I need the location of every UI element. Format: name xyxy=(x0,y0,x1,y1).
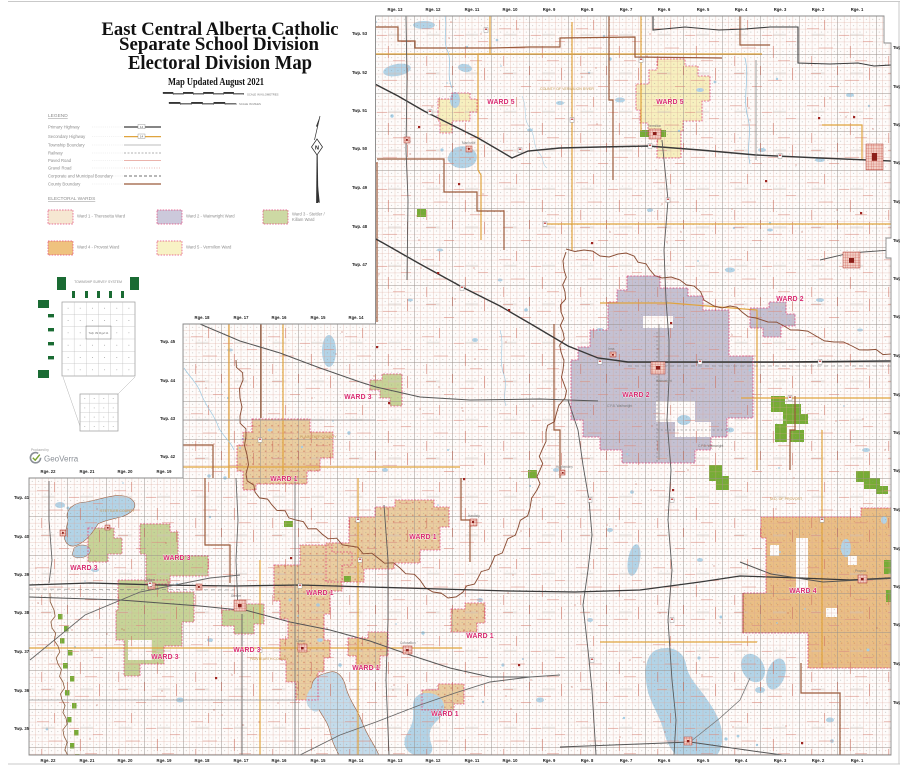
svg-text:WARD 1: WARD 1 xyxy=(409,532,437,541)
svg-text:Rge. 9: Rge. 9 xyxy=(543,7,556,12)
svg-text:TOWNSHIP SURVEY SYSTEM: TOWNSHIP SURVEY SYSTEM xyxy=(74,280,122,284)
svg-text:C.F.B. Wainwright: C.F.B. Wainwright xyxy=(698,444,723,448)
svg-text:Rge. 11: Rge. 11 xyxy=(465,7,480,12)
svg-text:Map Updated August 2021: Map Updated August 2021 xyxy=(168,77,264,88)
svg-text:Paved Road: Paved Road xyxy=(48,158,72,163)
svg-text:Twp. 42: Twp. 42 xyxy=(893,430,900,435)
svg-text:Twp. 51: Twp. 51 xyxy=(352,108,368,113)
svg-text:Twp. 42: Twp. 42 xyxy=(160,454,176,459)
svg-text:WARD 1: WARD 1 xyxy=(466,631,494,640)
svg-text:Twp 39 Rge 11: Twp 39 Rge 11 xyxy=(89,331,109,335)
svg-text:Rge. 8: Rge. 8 xyxy=(581,758,594,763)
svg-text:Rge. 3: Rge. 3 xyxy=(774,7,787,12)
svg-text:SCALE IN MILES: SCALE IN MILES xyxy=(239,102,261,106)
svg-text:Twp. 38: Twp. 38 xyxy=(893,584,900,589)
svg-text:Stettler: Stettler xyxy=(231,594,242,598)
svg-text:Twp. 35: Twp. 35 xyxy=(893,700,900,705)
svg-text:Killam Ward: Killam Ward xyxy=(292,217,315,222)
svg-text:WARD 5: WARD 5 xyxy=(656,97,684,106)
svg-text:Castor: Castor xyxy=(296,639,306,643)
svg-text:Rge. 16: Rge. 16 xyxy=(272,758,288,763)
svg-text:County Boundary: County Boundary xyxy=(48,181,81,186)
svg-text:WARD 3: WARD 3 xyxy=(163,553,191,562)
svg-text:Twp. 38: Twp. 38 xyxy=(14,610,30,615)
svg-text:Twp. 47: Twp. 47 xyxy=(352,262,368,267)
svg-text:COUNTY OF VERMILION RIVER: COUNTY OF VERMILION RIVER xyxy=(540,87,594,91)
svg-text:Rge. 21: Rge. 21 xyxy=(80,758,96,763)
svg-text:Coronation: Coronation xyxy=(400,641,416,645)
svg-text:Rge. 20: Rge. 20 xyxy=(118,469,134,474)
svg-text:Rge. 20: Rge. 20 xyxy=(118,758,134,763)
svg-text:Gravel Road: Gravel Road xyxy=(48,165,72,170)
svg-text:Hughenden: Hughenden xyxy=(556,465,573,469)
svg-text:Rge. 10: Rge. 10 xyxy=(503,7,519,12)
svg-text:Twp. 36: Twp. 36 xyxy=(893,661,900,666)
svg-text:Rge. 3: Rge. 3 xyxy=(774,758,787,763)
svg-text:Rge. 14: Rge. 14 xyxy=(349,758,365,763)
svg-text:Rge. 19: Rge. 19 xyxy=(157,469,173,474)
svg-text:STETTLER COUNTY: STETTLER COUNTY xyxy=(100,509,135,513)
svg-text:Twp. 46: Twp. 46 xyxy=(893,276,900,281)
svg-text:Rge. 22: Rge. 22 xyxy=(41,758,57,763)
svg-text:WARD 3: WARD 3 xyxy=(344,392,372,401)
svg-text:WARD 1: WARD 1 xyxy=(431,709,459,718)
svg-text:Twp. 37: Twp. 37 xyxy=(14,649,30,654)
svg-text:Irma: Irma xyxy=(608,347,615,351)
svg-text:Rge. 15: Rge. 15 xyxy=(311,315,327,320)
svg-text:Twp. 49: Twp. 49 xyxy=(352,185,368,190)
svg-text:Secondary Highway: Secondary Highway xyxy=(48,134,86,139)
svg-text:Rge. 2: Rge. 2 xyxy=(812,758,825,763)
svg-text:Rge. 14: Rge. 14 xyxy=(349,315,365,320)
svg-text:Twp. 44: Twp. 44 xyxy=(893,353,900,358)
svg-text:Twp. 37: Twp. 37 xyxy=(893,622,900,627)
svg-text:M.D. OF PROVOST: M.D. OF PROVOST xyxy=(770,497,803,501)
svg-text:Twp. 50: Twp. 50 xyxy=(352,146,368,151)
svg-text:Rge. 18: Rge. 18 xyxy=(195,758,211,763)
svg-text:Mannville: Mannville xyxy=(462,141,476,145)
svg-text:Twp. 50: Twp. 50 xyxy=(893,122,900,127)
svg-text:WARD 3: WARD 3 xyxy=(70,563,98,572)
svg-text:Ward 5 - Vermilion Ward: Ward 5 - Vermilion Ward xyxy=(186,245,232,250)
svg-text:Twp. 36: Twp. 36 xyxy=(14,688,30,693)
svg-text:Twp. 52: Twp. 52 xyxy=(352,70,368,75)
svg-text:WARD 3: WARD 3 xyxy=(151,652,179,661)
svg-text:GeoVerra: GeoVerra xyxy=(44,455,79,464)
svg-text:Vermilion: Vermilion xyxy=(648,124,661,128)
svg-text:Rge. 12: Rge. 12 xyxy=(426,758,442,763)
svg-text:C.F.B. Wainwright: C.F.B. Wainwright xyxy=(607,404,632,408)
svg-text:Twp. 43: Twp. 43 xyxy=(893,392,900,397)
svg-text:Killam: Killam xyxy=(146,578,155,582)
svg-text:Rge. 10: Rge. 10 xyxy=(503,758,519,763)
svg-text:WARD 2: WARD 2 xyxy=(622,390,650,399)
svg-text:Rge. 13: Rge. 13 xyxy=(388,758,404,763)
svg-text:Twp. 39: Twp. 39 xyxy=(14,572,30,577)
svg-text:SCALE IN KILOMETRES: SCALE IN KILOMETRES xyxy=(247,93,279,97)
svg-text:FLAGSTAFF COUNTY: FLAGSTAFF COUNTY xyxy=(300,435,337,439)
svg-text:LEGEND: LEGEND xyxy=(48,113,68,119)
svg-text:Rge. 18: Rge. 18 xyxy=(195,315,211,320)
svg-text:Twp. 41: Twp. 41 xyxy=(14,495,30,500)
svg-text:Twp. 52: Twp. 52 xyxy=(893,45,900,50)
svg-text:Rge. 5: Rge. 5 xyxy=(697,758,710,763)
svg-text:14: 14 xyxy=(140,134,144,138)
svg-text:Ward 3 - Stettler /: Ward 3 - Stettler / xyxy=(292,212,325,217)
svg-text:WARD 1: WARD 1 xyxy=(352,663,380,672)
svg-text:Twp. 51: Twp. 51 xyxy=(893,84,900,89)
svg-text:Produced by: Produced by xyxy=(31,448,49,452)
svg-text:Twp. 41: Twp. 41 xyxy=(893,468,900,473)
svg-text:Twp. 40: Twp. 40 xyxy=(893,507,900,512)
svg-text:Rge. 4: Rge. 4 xyxy=(735,758,748,763)
svg-text:Rge. 1: Rge. 1 xyxy=(851,758,864,763)
svg-text:N: N xyxy=(315,145,319,151)
svg-text:Twp. 48: Twp. 48 xyxy=(352,224,368,229)
svg-text:Twp. 53: Twp. 53 xyxy=(352,31,368,36)
svg-text:WARD 4: WARD 4 xyxy=(789,586,817,595)
svg-text:Rge. 8: Rge. 8 xyxy=(581,7,594,12)
svg-text:Railway: Railway xyxy=(48,150,64,155)
svg-text:Rge. 4: Rge. 4 xyxy=(735,7,748,12)
svg-text:Twp. 45: Twp. 45 xyxy=(160,339,176,344)
svg-text:Twp. 49: Twp. 49 xyxy=(893,160,900,165)
svg-text:14: 14 xyxy=(140,125,144,129)
svg-text:Twp. 44: Twp. 44 xyxy=(160,378,176,383)
svg-text:WARD 3: WARD 3 xyxy=(233,645,261,654)
svg-text:Township Boundary: Township Boundary xyxy=(48,142,85,147)
svg-text:Hardisty: Hardisty xyxy=(468,514,480,518)
svg-text:ELECTORAL WARDS: ELECTORAL WARDS xyxy=(48,196,95,202)
svg-text:Twp. 40: Twp. 40 xyxy=(14,534,30,539)
svg-text:Twp. 48: Twp. 48 xyxy=(893,199,900,204)
svg-text:Rge. 2: Rge. 2 xyxy=(812,7,825,12)
svg-text:Twp. 39: Twp. 39 xyxy=(893,546,900,551)
svg-text:Rge. 9: Rge. 9 xyxy=(543,758,556,763)
svg-text:Electoral Division Map: Electoral Division Map xyxy=(128,52,312,74)
svg-text:Twp. 47: Twp. 47 xyxy=(893,238,900,243)
svg-text:Rge. 22: Rge. 22 xyxy=(41,469,57,474)
svg-text:WARD 1: WARD 1 xyxy=(270,474,298,483)
svg-text:WARD 2: WARD 2 xyxy=(776,294,804,303)
svg-text:Rge. 19: Rge. 19 xyxy=(157,758,173,763)
svg-text:Rge. 6: Rge. 6 xyxy=(658,7,671,12)
svg-text:PAINTEARTH COUNTY: PAINTEARTH COUNTY xyxy=(250,657,289,661)
svg-text:Rge. 1: Rge. 1 xyxy=(851,7,864,12)
svg-text:Rge. 7: Rge. 7 xyxy=(620,758,633,763)
svg-text:Rge. 17: Rge. 17 xyxy=(234,758,250,763)
svg-text:Rge. 7: Rge. 7 xyxy=(620,7,633,12)
svg-text:WARD 1: WARD 1 xyxy=(306,588,334,597)
svg-text:Wainwright: Wainwright xyxy=(656,379,672,383)
svg-text:Rge. 13: Rge. 13 xyxy=(388,7,404,12)
svg-text:Rge. 12: Rge. 12 xyxy=(426,7,442,12)
svg-text:Twp. 43: Twp. 43 xyxy=(160,416,176,421)
svg-text:Rge. 6: Rge. 6 xyxy=(658,758,671,763)
svg-text:Primary Highway: Primary Highway xyxy=(48,124,81,129)
svg-text:Rge. 11: Rge. 11 xyxy=(465,758,480,763)
svg-text:Ward 1 - Theresetta Ward: Ward 1 - Theresetta Ward xyxy=(77,214,126,219)
svg-text:Ward 2 - Wainwright Ward: Ward 2 - Wainwright Ward xyxy=(186,214,235,219)
svg-text:Ward 4 - Provost Ward: Ward 4 - Provost Ward xyxy=(77,245,120,250)
svg-text:Rge. 21: Rge. 21 xyxy=(80,469,96,474)
svg-text:Twp. 45: Twp. 45 xyxy=(893,314,900,319)
svg-text:Twp. 35: Twp. 35 xyxy=(14,726,30,731)
svg-text:Provost: Provost xyxy=(855,569,866,573)
svg-text:Rge. 15: Rge. 15 xyxy=(311,758,327,763)
svg-text:WARD 5: WARD 5 xyxy=(487,97,515,106)
svg-text:Rge. 16: Rge. 16 xyxy=(272,315,288,320)
svg-text:Rge. 17: Rge. 17 xyxy=(234,315,250,320)
svg-text:Rge. 5: Rge. 5 xyxy=(697,7,710,12)
